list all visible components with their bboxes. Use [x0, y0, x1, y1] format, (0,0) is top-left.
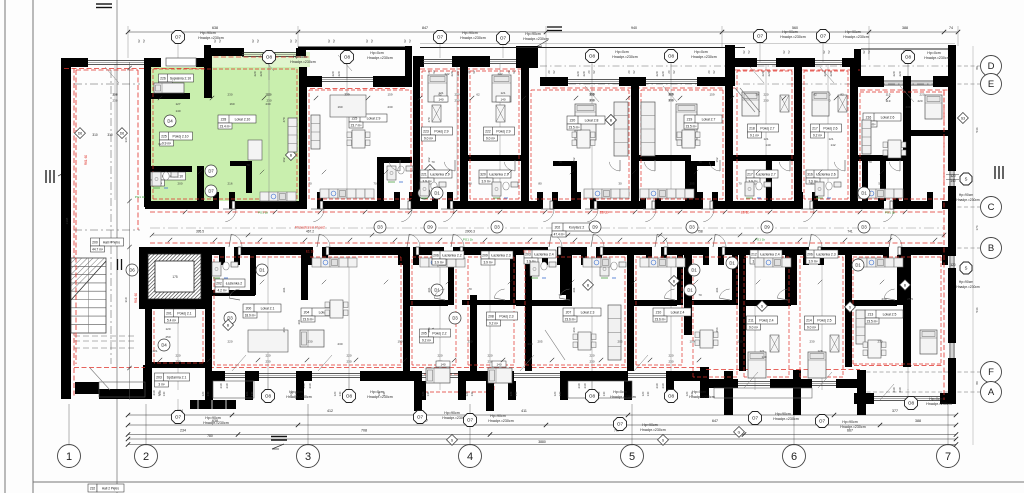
svg-text:230: 230 [589, 98, 594, 102]
svg-text:213: 213 [868, 312, 874, 316]
svg-text:388: 388 [915, 419, 921, 423]
svg-text:D1: D1 [434, 191, 440, 196]
svg-text:140: 140 [338, 391, 342, 396]
svg-text:230: 230 [227, 93, 232, 97]
svg-text:Hall 2 Piętro: Hall 2 Piętro [102, 487, 120, 491]
svg-text:D1: D1 [259, 268, 265, 273]
svg-text:220: 220 [763, 93, 768, 97]
svg-text:20: 20 [507, 70, 511, 74]
svg-text:162: 162 [572, 157, 576, 162]
svg-text:O7: O7 [175, 415, 182, 420]
svg-text:Hnadpr.=230cm: Hnadpr.=230cm [290, 60, 315, 64]
svg-text:291: 291 [572, 287, 576, 292]
svg-text:9.0 m²: 9.0 m² [807, 326, 816, 330]
svg-text:175: 175 [172, 275, 178, 279]
svg-text:217: 217 [747, 172, 753, 176]
svg-text:217: 217 [812, 126, 818, 130]
svg-text:6: 6 [791, 451, 797, 463]
svg-text:190: 190 [397, 340, 402, 344]
svg-text:82: 82 [840, 93, 844, 97]
svg-text:242: 242 [497, 72, 502, 76]
svg-text:23.6 m²: 23.6 m² [303, 318, 314, 322]
svg-text:220: 220 [767, 71, 771, 76]
svg-text:Hnadpr.=230cm: Hnadpr.=230cm [780, 35, 805, 39]
svg-text:221: 221 [421, 172, 427, 176]
svg-text:291: 291 [427, 287, 431, 292]
svg-text:230: 230 [219, 383, 223, 388]
svg-text:388: 388 [902, 26, 908, 30]
svg-text:544: 544 [975, 307, 979, 312]
svg-text:377: 377 [892, 409, 898, 413]
svg-text:D9: D9 [764, 225, 770, 230]
svg-text:264: 264 [282, 327, 286, 332]
svg-text:230: 230 [467, 340, 472, 344]
svg-text:O7: O7 [175, 35, 182, 40]
svg-text:210: 210 [656, 310, 662, 314]
svg-text:O7: O7 [819, 419, 826, 424]
svg-text:412: 412 [327, 409, 333, 413]
svg-text:140: 140 [175, 109, 180, 113]
svg-text:250: 250 [165, 335, 170, 339]
svg-text:E: E [988, 79, 994, 90]
svg-text:140: 140 [496, 363, 501, 367]
svg-text:230: 230 [905, 105, 910, 109]
svg-text:200: 200 [177, 182, 182, 186]
svg-text:214: 214 [806, 318, 812, 322]
svg-text:70: 70 [698, 160, 702, 164]
svg-text:92: 92 [782, 50, 786, 54]
svg-text:70: 70 [308, 182, 312, 186]
svg-text:160: 160 [229, 102, 234, 106]
svg-text:Hall i Piętro: Hall i Piętro [103, 240, 120, 244]
svg-text:3 m²: 3 m² [158, 383, 164, 387]
svg-text:80: 80 [975, 381, 979, 385]
svg-text:52: 52 [294, 39, 298, 43]
svg-text:D3: D3 [452, 316, 458, 321]
svg-text:159: 159 [689, 340, 694, 344]
svg-text:230: 230 [892, 387, 896, 392]
svg-text:23.5 m²: 23.5 m² [867, 320, 878, 324]
svg-text:226: 226 [160, 76, 166, 80]
svg-text:264: 264 [427, 327, 431, 332]
svg-text:B: B [988, 243, 994, 254]
svg-text:3880: 3880 [538, 440, 546, 444]
svg-text:23.6 m²: 23.6 m² [565, 318, 576, 322]
svg-text:Lokal 2.8: Lokal 2.8 [585, 118, 599, 122]
svg-text:209: 209 [482, 253, 488, 257]
svg-text:230: 230 [668, 98, 673, 102]
svg-text:Hnadpr.=230cm: Hnadpr.=230cm [956, 285, 980, 289]
svg-text:121: 121 [759, 349, 764, 353]
svg-text:219: 219 [687, 117, 693, 121]
svg-text:220: 220 [227, 340, 232, 344]
svg-text:Hnadpr.=230cm: Hnadpr.=230cm [523, 37, 548, 41]
svg-text:O8: O8 [908, 401, 915, 406]
svg-text:O7: O7 [617, 422, 624, 427]
svg-text:230: 230 [737, 340, 742, 344]
svg-text:7: 7 [945, 451, 951, 463]
svg-text:92: 92 [327, 39, 331, 43]
svg-text:230: 230 [877, 340, 882, 344]
svg-text:216: 216 [227, 182, 232, 186]
svg-text:70: 70 [738, 182, 742, 186]
svg-text:D1: D1 [729, 261, 735, 266]
svg-text:207: 207 [566, 310, 572, 314]
svg-text:Hp=0cm: Hp=0cm [289, 390, 302, 394]
svg-text:220: 220 [454, 93, 459, 97]
svg-text:Hp=90cm: Hp=90cm [525, 32, 540, 36]
svg-text:140: 140 [250, 391, 254, 396]
svg-text:220: 220 [175, 354, 180, 358]
svg-text:320: 320 [480, 172, 486, 176]
svg-text:2000.3: 2000.3 [465, 230, 475, 234]
svg-text:D1: D1 [855, 263, 861, 268]
svg-text:Hp=90cm: Hp=90cm [845, 30, 860, 34]
svg-text:230: 230 [346, 360, 351, 364]
svg-text:20: 20 [667, 70, 671, 74]
svg-text:Pokój 2.4: Pokój 2.4 [759, 318, 773, 322]
svg-text:Łazienka 2.9: Łazienka 2.9 [489, 172, 508, 176]
svg-text:80: 80 [975, 66, 979, 70]
svg-text:142: 142 [830, 143, 835, 147]
svg-text:120: 120 [165, 327, 170, 331]
svg-text:220: 220 [344, 93, 349, 97]
svg-text:140: 140 [761, 355, 766, 359]
svg-text:230: 230 [337, 342, 342, 346]
svg-text:Hp=90cm: Hp=90cm [444, 411, 459, 415]
svg-text:204: 204 [304, 310, 310, 314]
svg-text:159: 159 [709, 93, 714, 97]
svg-text:D1: D1 [861, 191, 867, 196]
svg-text:128: 128 [817, 349, 822, 353]
svg-text:62: 62 [476, 93, 480, 97]
svg-text:5: 5 [629, 451, 635, 463]
svg-text:470: 470 [282, 117, 286, 122]
svg-text:120: 120 [950, 263, 956, 267]
svg-text:R61 60: R61 60 [84, 155, 88, 166]
svg-text:120: 120 [421, 391, 425, 396]
svg-text:9.0 m²: 9.0 m² [486, 137, 495, 141]
svg-text:201: 201 [166, 311, 172, 315]
svg-text:47.4 m²: 47.4 m² [554, 233, 565, 237]
svg-text:O8: O8 [589, 54, 596, 59]
svg-text:1: 1 [66, 451, 72, 463]
svg-text:Pokój 2.7: Pokój 2.7 [760, 126, 774, 130]
svg-text:140: 140 [514, 391, 518, 396]
svg-text:92: 92 [251, 39, 255, 43]
svg-text:Lokal 2.10: Lokal 2.10 [235, 117, 251, 121]
svg-text:52: 52 [256, 39, 260, 43]
svg-text:140: 140 [440, 363, 445, 367]
svg-text:230: 230 [583, 383, 587, 388]
svg-text:Hnadpr.=230cm: Hnadpr.=230cm [367, 56, 392, 60]
svg-text:O8: O8 [346, 394, 353, 399]
svg-text:140: 140 [558, 391, 562, 396]
svg-text:708: 708 [361, 429, 367, 433]
svg-text:Hp=0cm: Hp=0cm [615, 50, 628, 54]
svg-text:Hnadpr.=230cm: Hnadpr.=230cm [956, 198, 980, 202]
svg-text:O7: O7 [500, 36, 507, 41]
svg-text:57: 57 [878, 182, 882, 186]
svg-text:Hp=0cm: Hp=0cm [370, 390, 383, 394]
svg-text:20: 20 [547, 70, 551, 74]
svg-text:52: 52 [142, 39, 146, 43]
svg-text:228: 228 [221, 117, 227, 121]
svg-text:205: 205 [689, 182, 694, 186]
svg-text:Hp=90cm: Hp=90cm [842, 420, 857, 424]
svg-text:140: 140 [162, 391, 166, 396]
svg-text:70: 70 [558, 293, 562, 297]
svg-text:230: 230 [308, 383, 312, 388]
svg-text:3.9 m²: 3.9 m² [481, 180, 490, 184]
svg-text:Hp=0cm: Hp=0cm [694, 50, 707, 54]
svg-text:1398: 1398 [65, 217, 69, 224]
svg-text:Hnadpr.=230cm: Hnadpr.=230cm [460, 36, 485, 40]
svg-text:92: 92 [632, 70, 636, 74]
svg-text:O8: O8 [589, 394, 596, 399]
svg-text:92: 92 [289, 39, 293, 43]
svg-text:232: 232 [90, 487, 96, 491]
svg-text:220: 220 [761, 71, 765, 76]
svg-text:Hnadpr.=230cm: Hnadpr.=230cm [773, 417, 798, 421]
svg-text:316: 316 [807, 172, 813, 176]
svg-text:230: 230 [152, 390, 156, 395]
svg-text:220: 220 [437, 354, 442, 358]
svg-text:3: 3 [305, 451, 311, 463]
svg-text:Lokal 2.5: Lokal 2.5 [883, 312, 897, 316]
svg-text:52: 52 [370, 39, 374, 43]
svg-text:D9: D9 [592, 225, 598, 230]
svg-text:Sypialnia 2.10: Sypialnia 2.10 [170, 76, 191, 80]
svg-text:208: 208 [488, 314, 494, 318]
svg-text:230: 230 [661, 383, 665, 388]
svg-text:Hp=90cm: Hp=90cm [959, 280, 973, 284]
svg-text:E1 3b: E1 3b [600, 211, 609, 215]
svg-text:92: 92 [365, 39, 369, 43]
svg-text:780: 780 [207, 434, 213, 438]
svg-text:Hnadpr.=230cm: Hnadpr.=230cm [691, 55, 716, 59]
svg-text:220: 220 [450, 71, 454, 76]
svg-text:4: 4 [467, 451, 473, 463]
svg-text:206: 206 [807, 252, 813, 256]
svg-text:Łazienka 2.3: Łazienka 2.3 [816, 252, 835, 256]
svg-text:C: C [988, 202, 995, 213]
svg-text:Łazienka 2.3: Łazienka 2.3 [491, 253, 510, 257]
svg-text:O8: O8 [905, 55, 912, 60]
svg-text:120: 120 [201, 391, 205, 396]
svg-text:Hnadpr.=230cm: Hnadpr.=230cm [198, 36, 223, 40]
svg-text:92: 92 [432, 70, 436, 74]
svg-text:Korytarz 2: Korytarz 2 [569, 225, 585, 229]
svg-text:847: 847 [422, 26, 428, 30]
svg-text:O8: O8 [344, 55, 351, 60]
svg-text:121: 121 [763, 137, 768, 141]
svg-text:230: 230 [527, 342, 532, 346]
svg-text:Lokal 2.6: Lokal 2.6 [881, 115, 895, 119]
svg-text:Hp=0cm: Hp=0cm [370, 51, 383, 55]
svg-text:Hp=90cm: Hp=90cm [959, 193, 973, 197]
svg-text:52: 52 [408, 39, 412, 43]
svg-text:Hp=90cm: Hp=90cm [490, 414, 505, 418]
svg-text:162: 162 [282, 157, 286, 162]
svg-text:220: 220 [570, 118, 576, 122]
svg-text:Hp=0cm: Hp=0cm [692, 390, 705, 394]
svg-text:741: 741 [847, 230, 853, 234]
svg-text:18.9 m²: 18.9 m² [245, 314, 256, 318]
svg-text:E1 1b: E1 1b [523, 250, 532, 254]
svg-text:140: 140 [765, 143, 770, 147]
svg-text:S: S [965, 266, 968, 271]
svg-text:D6: D6 [120, 131, 124, 135]
svg-text:20: 20 [467, 70, 471, 74]
svg-text:140: 140 [438, 98, 443, 102]
svg-text:200: 200 [246, 306, 252, 310]
svg-text:220: 220 [589, 354, 594, 358]
svg-text:203: 203 [156, 375, 162, 379]
svg-text:R61 60: R61 60 [134, 293, 138, 304]
svg-text:80: 80 [468, 182, 472, 186]
svg-text:220: 220 [253, 71, 257, 76]
svg-text:Łazienka 2.4: Łazienka 2.4 [534, 252, 553, 256]
svg-text:159: 159 [387, 93, 392, 97]
svg-text:23.7 m²: 23.7 m² [351, 124, 362, 128]
svg-text:230: 230 [763, 99, 768, 103]
svg-text:70: 70 [373, 182, 377, 186]
svg-text:44.7 m²: 44.7 m² [92, 248, 103, 252]
svg-text:190: 190 [337, 105, 342, 109]
svg-text:20: 20 [627, 70, 631, 74]
svg-text:Hp=90cm: Hp=90cm [200, 31, 215, 35]
svg-text:3.9 m²: 3.9 m² [483, 261, 492, 265]
svg-text:70: 70 [468, 287, 472, 291]
svg-text:220: 220 [919, 93, 924, 97]
svg-text:310: 310 [124, 297, 128, 302]
svg-text:92: 92 [822, 50, 826, 54]
svg-text:Lokal 2.4: Lokal 2.4 [671, 310, 685, 314]
svg-text:220: 220 [582, 71, 586, 76]
svg-text:92: 92 [862, 50, 866, 54]
svg-text:Hp=90cm: Hp=90cm [462, 31, 477, 35]
svg-text:9.2 m²: 9.2 m² [422, 339, 431, 343]
svg-text:23.5 m²: 23.5 m² [686, 125, 697, 129]
svg-text:PG1 1b: PG1 1b [885, 211, 896, 215]
svg-text:225: 225 [161, 134, 167, 138]
svg-text:S3: S3 [961, 116, 965, 120]
svg-text:70: 70 [698, 293, 702, 297]
svg-text:398: 398 [112, 93, 117, 97]
svg-text:70: 70 [558, 160, 562, 164]
svg-text:30: 30 [618, 182, 622, 186]
svg-text:O8: O8 [668, 394, 675, 399]
svg-text:140: 140 [646, 391, 650, 396]
svg-text:Hnadpr.=230cm: Hnadpr.=230cm [610, 395, 635, 399]
svg-text:264: 264 [572, 327, 576, 332]
svg-text:667: 667 [847, 429, 853, 433]
svg-text:Łazienka 2: Łazienka 2 [226, 281, 243, 285]
svg-text:202: 202 [216, 281, 222, 285]
svg-text:D1: D1 [691, 268, 697, 273]
svg-text:220: 220 [655, 71, 659, 76]
svg-text:D3: D3 [494, 225, 500, 230]
svg-text:211: 211 [748, 318, 754, 322]
svg-text:291: 291 [297, 319, 301, 324]
svg-text:230: 230 [589, 360, 594, 364]
svg-text:O8: O8 [265, 394, 272, 399]
svg-text:310: 310 [107, 133, 113, 137]
svg-text:Hp=90cm: Hp=90cm [205, 416, 220, 420]
svg-text:230: 230 [898, 387, 902, 392]
svg-text:F: F [988, 367, 994, 378]
svg-text:O7: O7 [467, 418, 474, 423]
svg-text:25.5: 25.5 [907, 297, 913, 301]
svg-text:74: 74 [949, 26, 953, 30]
svg-text:120: 120 [553, 391, 557, 396]
svg-text:D3: D3 [377, 225, 383, 230]
svg-text:212: 212 [751, 252, 757, 256]
svg-text:220: 220 [892, 71, 896, 76]
svg-text:336: 336 [124, 137, 128, 142]
svg-text:Łazienka 2.2: Łazienka 2.2 [442, 253, 461, 257]
svg-text:222: 222 [485, 129, 491, 133]
svg-text:220: 220 [576, 71, 580, 76]
svg-text:92: 92 [712, 70, 716, 74]
svg-text:140: 140 [426, 391, 430, 396]
svg-text:O7: O7 [437, 35, 444, 40]
svg-text:230: 230 [655, 383, 659, 388]
svg-text:220: 220 [668, 93, 673, 97]
svg-text:Pokój 2.6: Pokój 2.6 [823, 126, 837, 130]
svg-text:230: 230 [112, 99, 117, 103]
svg-text:D3: D3 [861, 225, 867, 230]
svg-text:70: 70 [431, 160, 435, 164]
svg-text:Hnadpr.=230cm: Hnadpr.=230cm [924, 56, 949, 60]
svg-text:9.0 m²: 9.0 m² [749, 326, 758, 330]
svg-text:O7: O7 [757, 34, 764, 39]
svg-text:D7: D7 [208, 169, 214, 174]
svg-text:PG1 1b: PG1 1b [135, 195, 146, 199]
svg-text:242: 242 [444, 72, 449, 76]
svg-text:230: 230 [225, 383, 229, 388]
svg-text:220: 220 [259, 71, 263, 76]
svg-text:O8: O8 [668, 54, 675, 59]
svg-text:52: 52 [867, 50, 871, 54]
svg-text:Pokój 2.10: Pokój 2.10 [172, 134, 188, 138]
svg-text:D6: D6 [78, 131, 82, 135]
svg-text:E1 1b: E1 1b [741, 211, 750, 215]
svg-text:Lokal 2.3: Lokal 2.3 [581, 310, 595, 314]
svg-text:Lokal 2.1: Lokal 2.1 [261, 306, 275, 310]
svg-text:234: 234 [180, 429, 186, 433]
svg-text:Hp=90cm: Hp=90cm [642, 423, 657, 427]
svg-text:121: 121 [500, 91, 505, 95]
svg-text:62: 62 [158, 142, 162, 146]
svg-text:230: 230 [668, 360, 673, 364]
svg-text:Pokój 2.9: Pokój 2.9 [434, 129, 448, 133]
svg-text:O7: O7 [820, 34, 827, 39]
svg-text:120: 120 [245, 391, 249, 396]
svg-text:120: 120 [641, 391, 645, 396]
svg-text:Hp=0cm: Hp=0cm [927, 51, 940, 55]
svg-text:92: 92 [403, 39, 407, 43]
svg-text:162: 162 [715, 157, 719, 162]
svg-text:230: 230 [307, 340, 312, 344]
svg-text:218: 218 [749, 126, 755, 130]
svg-text:20: 20 [587, 70, 591, 74]
svg-text:220: 220 [487, 354, 492, 358]
svg-text:Hnadpr.=230cm: Hnadpr.=230cm [843, 35, 868, 39]
svg-text:39: 39 [755, 93, 759, 97]
svg-text:62: 62 [438, 93, 442, 97]
